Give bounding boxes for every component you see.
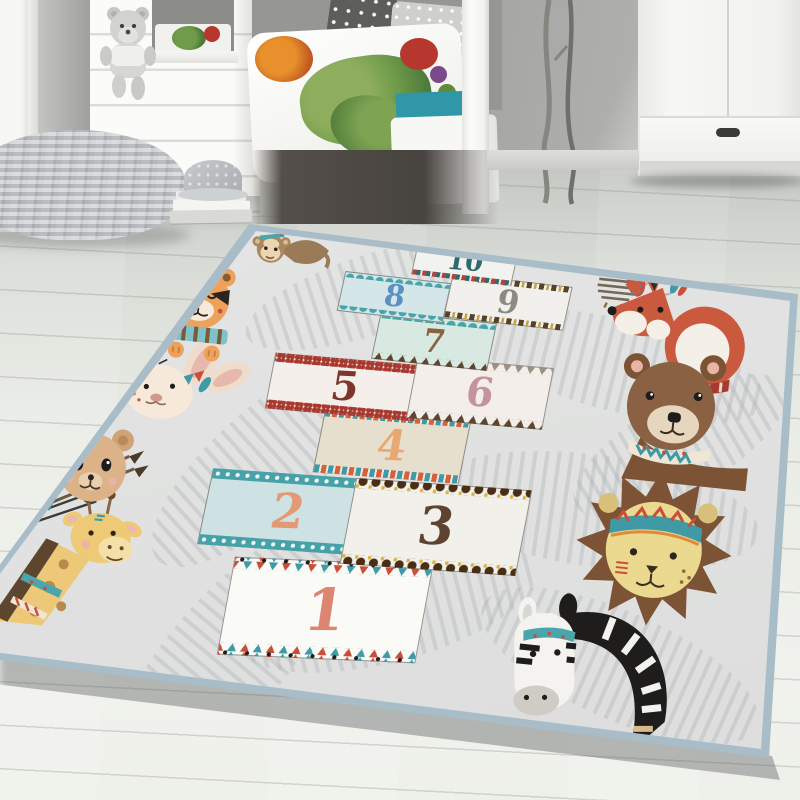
teddy-bear-plush-icon bbox=[92, 0, 162, 100]
wall-baseboard bbox=[487, 150, 639, 170]
decor-branches-icon bbox=[515, 0, 600, 205]
duvet-fruit-print bbox=[255, 36, 313, 82]
square-number: 3 bbox=[414, 500, 458, 553]
duvet-caterpillar-head bbox=[400, 38, 438, 70]
wardrobe-door-seam bbox=[727, 0, 729, 116]
square-number: 5 bbox=[328, 366, 362, 407]
square-number: 1 bbox=[301, 581, 350, 639]
kids-room-scene: 1 2 3 4 5 6 7 8 9 10 bbox=[0, 0, 800, 800]
caterpillar-pillow-head bbox=[204, 26, 220, 42]
hopscotch-square-3: 3 bbox=[340, 478, 533, 576]
hopscotch-square-1: 1 bbox=[217, 557, 434, 664]
square-number: 6 bbox=[463, 372, 497, 413]
wardrobe-shadow bbox=[630, 174, 800, 188]
under-bed-shadow bbox=[252, 150, 498, 224]
caterpillar-pillow-leaf bbox=[172, 26, 206, 50]
book bbox=[170, 209, 252, 223]
cap-brim bbox=[178, 188, 248, 201]
wardrobe-drawer bbox=[640, 116, 800, 163]
square-number: 4 bbox=[374, 424, 410, 467]
square-number: 7 bbox=[420, 324, 448, 357]
square-number: 8 bbox=[381, 281, 407, 313]
square-number: 2 bbox=[267, 487, 309, 536]
drawer-handle bbox=[716, 128, 740, 137]
square-number: 9 bbox=[494, 285, 522, 319]
